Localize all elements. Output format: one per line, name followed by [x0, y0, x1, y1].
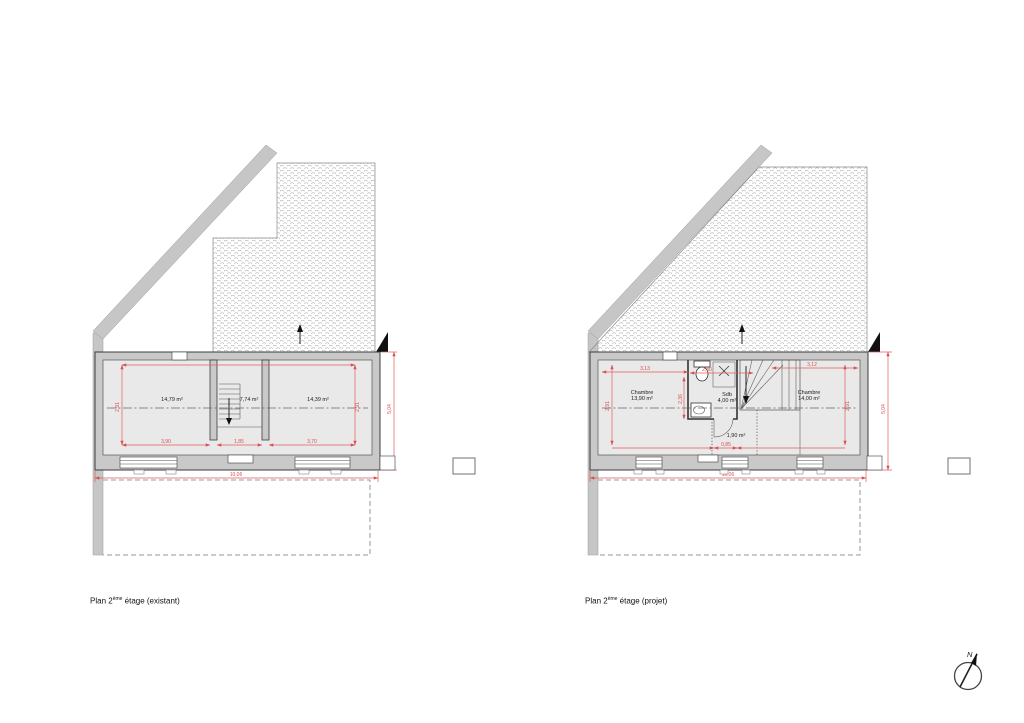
outbuilding-marker [453, 458, 475, 474]
dim-text: 2,30 [702, 367, 712, 373]
caption-sup: ème [113, 596, 123, 602]
chimney-flue [867, 456, 882, 470]
room-area-label: 14,00 m² [798, 396, 820, 402]
lower-floor-outline [103, 480, 370, 555]
room-area-label: 14,79 m² [161, 397, 183, 403]
room-area-label: 14,39 m² [307, 397, 329, 403]
lower-floor-outline [598, 480, 860, 555]
room-area-label: 1,90 m² [727, 433, 746, 439]
dim-text: 0,85 [721, 442, 731, 448]
project-plan-caption: Plan 2ème étage (projet) [585, 596, 667, 606]
top-wall-niche [663, 352, 677, 360]
dim-text: 3,12 [807, 362, 817, 368]
sink-icon [691, 403, 711, 417]
dim-text: 2,91 [845, 401, 851, 411]
dim-text: 3,13 [640, 366, 650, 372]
wall-recess [228, 455, 253, 463]
dim-text: 2,91 [605, 401, 611, 411]
drawing-sheet: { "existing": { "caption": {"prefix": "P… [0, 0, 1024, 723]
existing-plan-caption: Plan 2ème étage (existant) [90, 596, 180, 606]
room-area-label: 7,74 m² [240, 397, 259, 403]
partition-wall [210, 360, 217, 440]
window [120, 457, 177, 474]
caption-sup: ème [608, 596, 618, 602]
caption-text: étage (projet) [617, 597, 667, 606]
dim-text: 2,36 [678, 394, 684, 404]
dim-text: 2,91 [115, 402, 121, 412]
caption-text: Plan 2 [585, 597, 608, 606]
window [634, 457, 664, 474]
dim-text: 2,91 [355, 402, 361, 412]
section-marker-icon [376, 332, 388, 352]
project-plan: Chambre 13,90 m² Sdb 4,00 m² 1,90 m² Cha… [588, 145, 970, 555]
window [795, 457, 825, 474]
caption-text: Plan 2 [90, 597, 113, 606]
plan-canvas: 14,79 m² 7,74 m² 14,39 m² 2,91 2,91 3,90… [0, 0, 1024, 723]
window [720, 457, 750, 474]
dim-text: 1,85 [234, 439, 244, 445]
room-area-label: 4,00 m² [718, 398, 737, 404]
caption-text: étage (existant) [122, 597, 179, 606]
dim-text: 10,06 [230, 472, 243, 478]
floor-area [598, 360, 860, 455]
north-label: N [967, 650, 973, 659]
room-area-label: 13,90 m² [631, 396, 653, 402]
existing-plan: 14,79 m² 7,74 m² 14,39 m² 2,91 2,91 3,90… [93, 145, 475, 555]
top-wall-niche [172, 352, 187, 360]
outbuilding-marker [948, 458, 970, 474]
dim-text: 5,04 [881, 404, 887, 414]
north-compass-icon: N [955, 650, 982, 690]
window [295, 457, 350, 474]
partition-wall [262, 360, 269, 440]
section-marker-icon [868, 332, 880, 352]
dim-text: 3,70 [307, 439, 317, 445]
dim-text: 5,04 [387, 404, 393, 414]
chimney-flue [380, 456, 395, 470]
dim-text: 3,90 [161, 439, 171, 445]
wall-recess [698, 455, 718, 462]
